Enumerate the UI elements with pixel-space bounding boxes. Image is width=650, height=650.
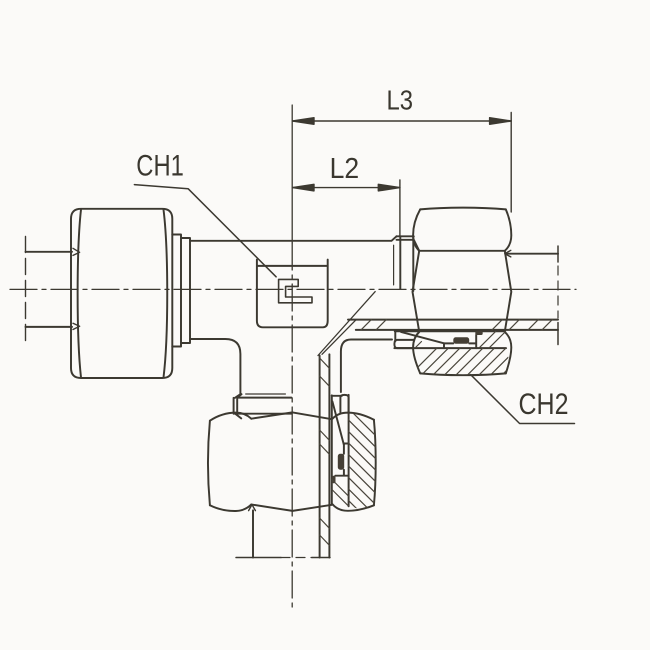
svg-text:L2: L2 [330, 153, 360, 185]
svg-text:CH2: CH2 [519, 388, 569, 421]
svg-text:L3: L3 [387, 85, 414, 116]
svg-text:CH1: CH1 [136, 150, 184, 183]
